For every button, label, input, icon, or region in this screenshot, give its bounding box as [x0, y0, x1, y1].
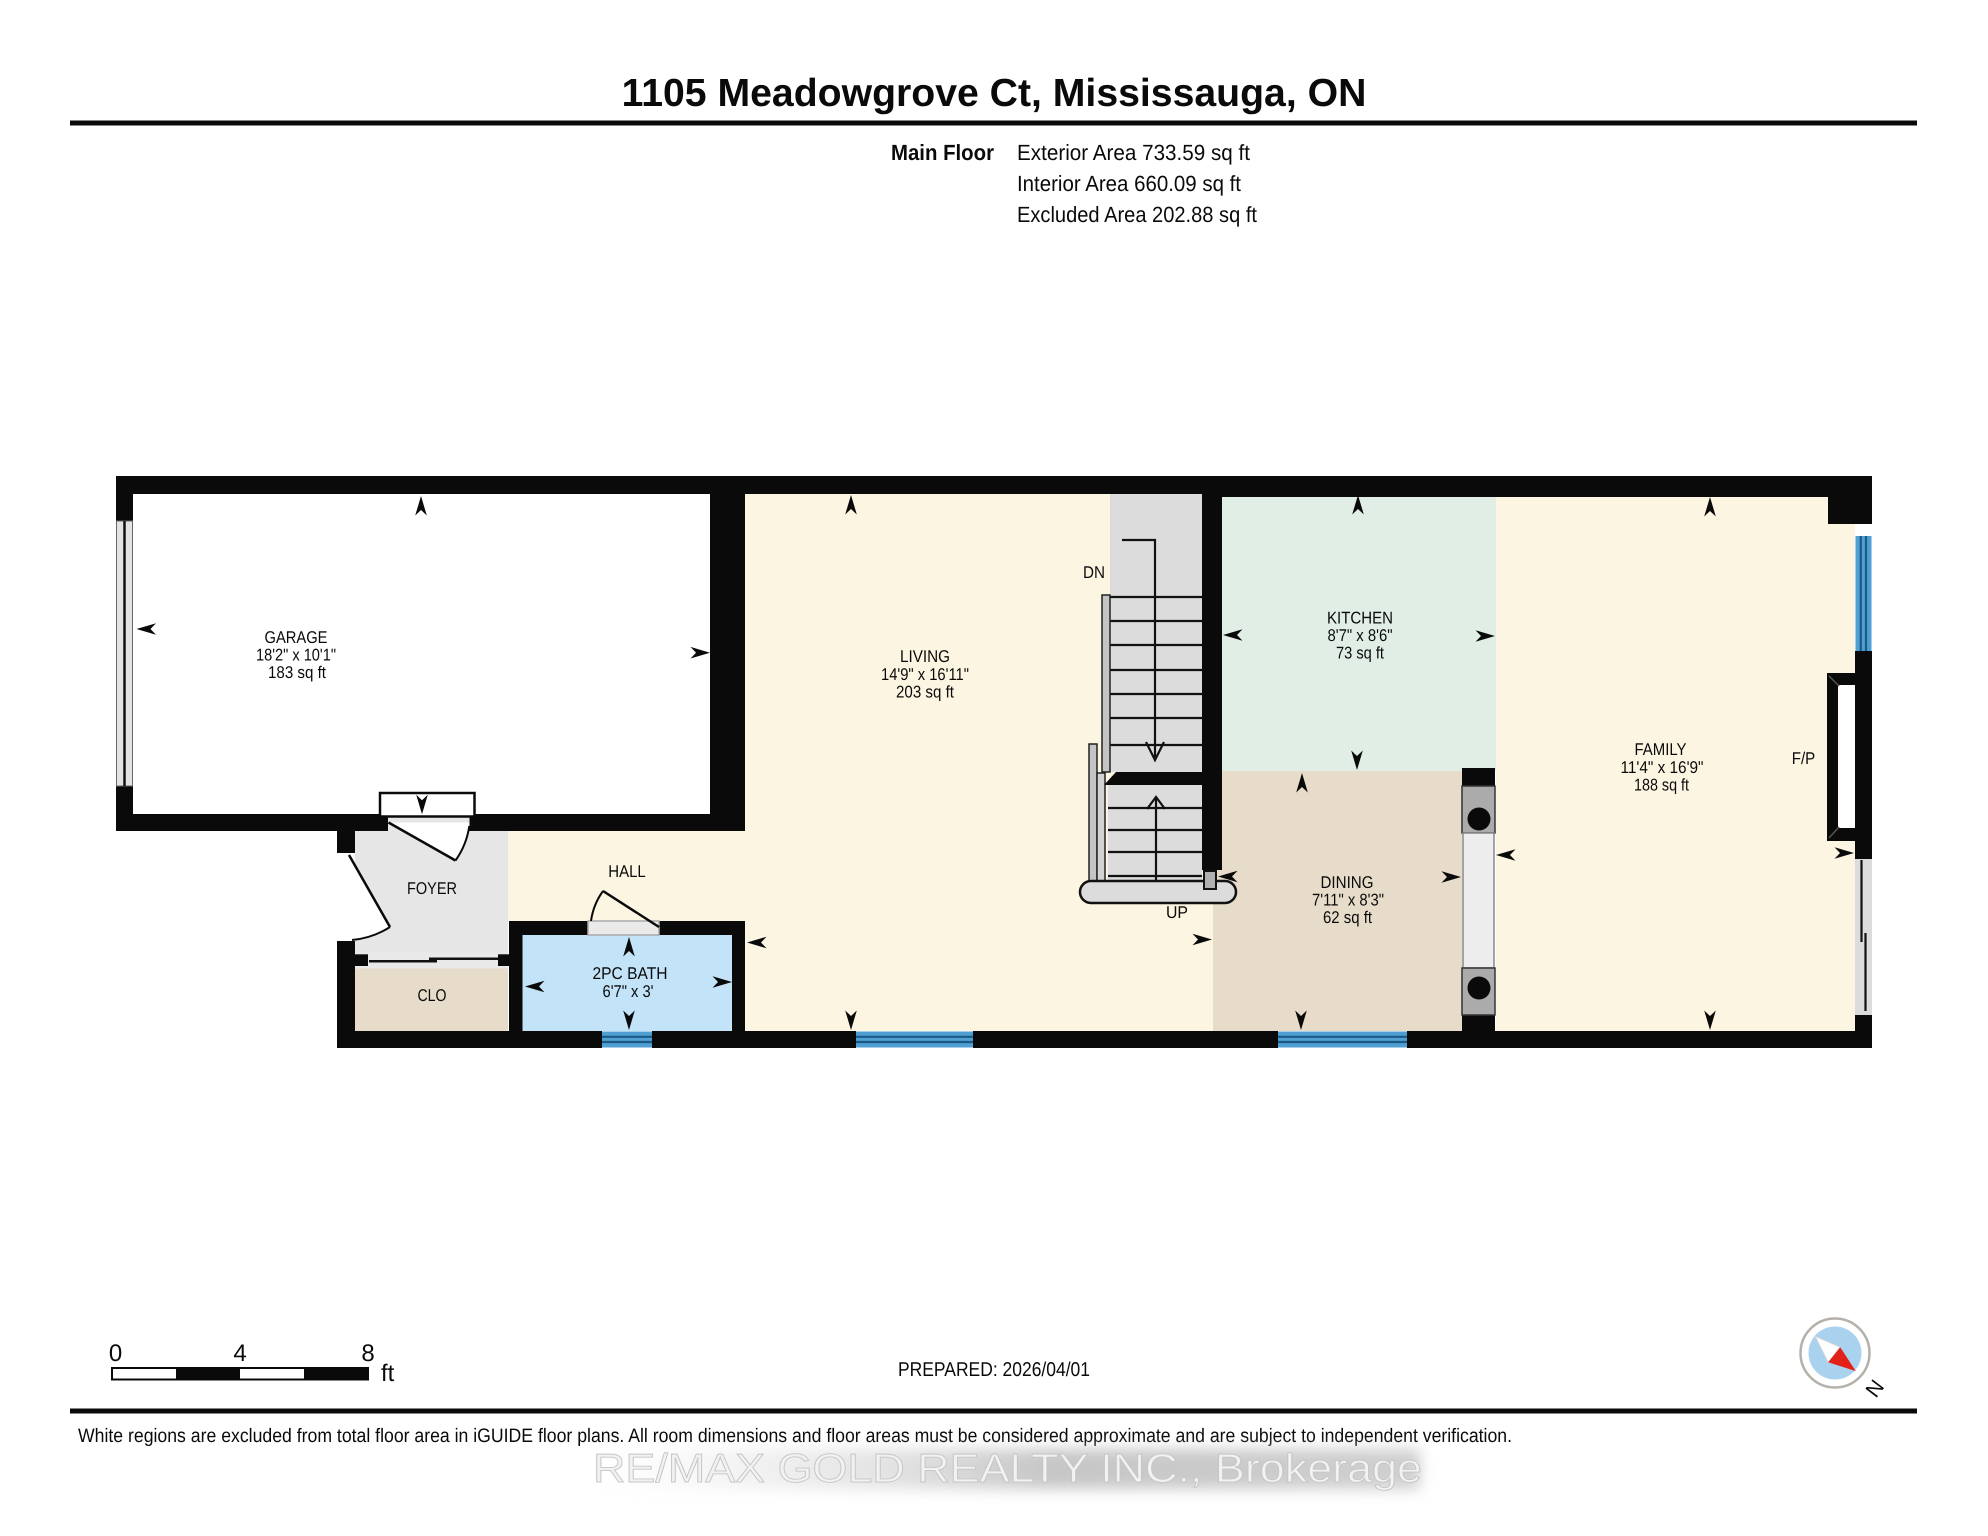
svg-text:4: 4 [233, 1340, 246, 1367]
svg-text:188 sq ft: 188 sq ft [1634, 776, 1689, 795]
svg-text:7'11" x 8'3": 7'11" x 8'3" [1312, 891, 1384, 910]
svg-text:1105 Meadowgrove Ct, Mississau: 1105 Meadowgrove Ct, Mississauga, ON [622, 72, 1367, 115]
svg-text:PREPARED: 2026/04/01: PREPARED: 2026/04/01 [898, 1359, 1090, 1381]
svg-text:F/P: F/P [1792, 749, 1816, 768]
svg-text:14'9" x 16'11": 14'9" x 16'11" [881, 665, 969, 684]
svg-text:8: 8 [361, 1340, 374, 1367]
svg-text:DN: DN [1083, 563, 1105, 582]
svg-text:203 sq ft: 203 sq ft [896, 683, 954, 702]
svg-text:6'7" x 3': 6'7" x 3' [603, 982, 654, 1001]
svg-text:LIVING: LIVING [900, 647, 950, 666]
svg-text:Main Floor: Main Floor [891, 140, 994, 165]
svg-text:Interior Area 660.09 sq ft: Interior Area 660.09 sq ft [1017, 171, 1241, 196]
svg-text:FAMILY: FAMILY [1635, 740, 1687, 759]
svg-text:0: 0 [109, 1340, 122, 1367]
svg-text:2PC BATH: 2PC BATH [593, 964, 668, 983]
svg-text:ft: ft [381, 1360, 395, 1387]
svg-text:Excluded Area 202.88 sq ft: Excluded Area 202.88 sq ft [1017, 202, 1257, 227]
svg-text:183 sq ft: 183 sq ft [268, 663, 326, 682]
svg-text:DINING: DINING [1321, 873, 1374, 892]
svg-text:FOYER: FOYER [407, 879, 457, 898]
svg-text:CLO: CLO [418, 986, 447, 1005]
svg-text:RE/MAX GOLD REALTY INC., Broke: RE/MAX GOLD REALTY INC., Brokerage [593, 1445, 1422, 1491]
svg-text:11'4" x 16'9": 11'4" x 16'9" [1621, 758, 1704, 777]
svg-text:73 sq ft: 73 sq ft [1336, 644, 1384, 663]
svg-text:KITCHEN: KITCHEN [1327, 609, 1393, 628]
svg-text:62 sq ft: 62 sq ft [1323, 908, 1372, 927]
svg-text:18'2" x 10'1": 18'2" x 10'1" [256, 646, 336, 665]
svg-text:Exterior Area 733.59 sq ft: Exterior Area 733.59 sq ft [1017, 140, 1250, 165]
svg-text:HALL: HALL [608, 862, 646, 881]
svg-text:8'7" x 8'6": 8'7" x 8'6" [1328, 626, 1393, 645]
svg-text:GARAGE: GARAGE [265, 628, 328, 647]
svg-text:White regions are excluded fro: White regions are excluded from total fl… [78, 1425, 1512, 1447]
svg-text:UP: UP [1166, 903, 1188, 922]
